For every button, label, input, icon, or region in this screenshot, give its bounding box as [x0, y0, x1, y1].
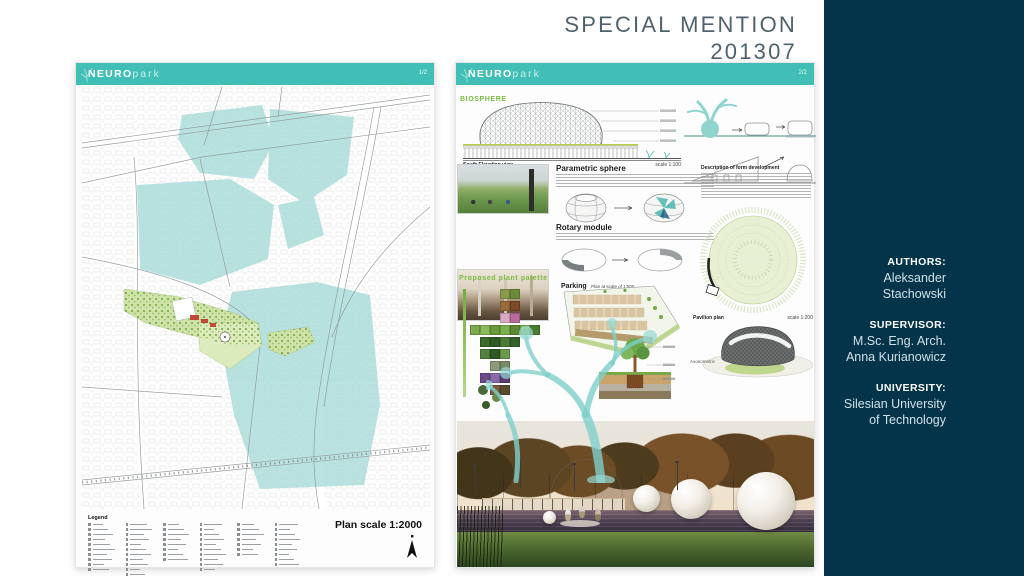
glow-sphere-small [633, 485, 660, 512]
brand-neuro: NEURO [468, 68, 512, 80]
palette-swatch [520, 337, 528, 345]
palette-swatch [510, 385, 518, 393]
palette-swatch [510, 289, 520, 299]
palette-swatch [480, 361, 488, 369]
palette-swatch [530, 313, 538, 321]
pavilion-plan-scale: scale 1:200 [787, 315, 813, 321]
legend-item [126, 573, 153, 576]
palette-swatch [500, 373, 510, 383]
palette-swatch [480, 337, 490, 347]
legend-item [275, 548, 301, 551]
legend-item [88, 553, 115, 556]
tree-section-diagram [589, 335, 681, 405]
legend-item [163, 543, 189, 546]
palette-swatch [530, 361, 538, 369]
parametric-sphere-diagram [556, 189, 706, 225]
university-label: UNIVERSITY: [824, 382, 946, 394]
legend-column [237, 523, 264, 576]
palette-swatch [510, 349, 518, 357]
plant-height-scale [463, 289, 466, 397]
palette-swatch [520, 373, 528, 381]
credits-sidebar: AUTHORS: Aleksander Stachowski SUPERVISO… [824, 0, 1024, 576]
supervisor-name: Anna Kurianowicz [824, 349, 946, 365]
palette-swatch [500, 361, 510, 371]
legend-item [275, 563, 301, 566]
legend-item [88, 568, 115, 571]
north-arrow-icon [404, 535, 420, 561]
palette-swatch [490, 349, 500, 359]
legend-item [237, 523, 264, 526]
render-lawn [457, 532, 814, 567]
glow-sphere-lawn [543, 511, 556, 524]
legend-item [88, 528, 115, 531]
palette-swatch [500, 313, 510, 323]
legend-item [88, 523, 115, 526]
elevation-scale: scale 1:100 [655, 162, 681, 168]
legend-item [88, 538, 115, 541]
university-name-2: of Technology [824, 412, 946, 428]
legend-item [88, 563, 115, 566]
legend-item [200, 548, 227, 551]
palette-swatch [480, 301, 488, 309]
palette-swatch [470, 361, 478, 369]
legend-item [163, 553, 189, 556]
legend-item [126, 528, 153, 531]
page-indicator-right: 2/2 [799, 70, 807, 76]
palette-swatch [530, 337, 538, 345]
legend-item [275, 533, 301, 536]
legend-item [126, 568, 153, 571]
poster-right-header: NEUROpark 2/2 [456, 63, 814, 85]
picnic-person [565, 509, 571, 521]
palette-swatch [470, 301, 478, 309]
palette-swatch [470, 385, 478, 393]
palette-swatch [480, 349, 490, 359]
street-lamp [520, 461, 521, 488]
street-lamp [574, 465, 575, 492]
award-title: SPECIAL MENTION [564, 12, 797, 39]
palette-swatch [480, 313, 488, 321]
legend-item [237, 548, 264, 551]
dome-elevation-drawing [463, 101, 681, 159]
legend-item [275, 523, 301, 526]
axonometric-caption: Axonometric [690, 359, 715, 364]
legend-item [200, 533, 227, 536]
plan-scale-label: Plan scale 1:2000 [335, 519, 422, 531]
palette-swatch [520, 289, 528, 297]
rotary-module-diagram [556, 244, 706, 274]
legend-item [200, 563, 227, 566]
poster-left-header: NEUROpark 1/2 [76, 63, 434, 85]
legend-item [275, 543, 301, 546]
palette-swatch [480, 325, 490, 335]
street-lamp [677, 463, 678, 490]
legend-item [200, 538, 227, 541]
legend-column [275, 523, 301, 576]
palette-swatch [470, 337, 478, 345]
form-development-heading: Description of form development [701, 165, 779, 171]
authors-label: AUTHORS: [824, 256, 946, 268]
palette-swatch [500, 325, 510, 335]
brand-neuro: NEURO [88, 68, 132, 80]
legend-column [126, 523, 153, 576]
palette-swatch [490, 289, 498, 297]
palette-swatch [470, 349, 478, 357]
legend-item [163, 528, 189, 531]
plant-icon [492, 393, 501, 402]
legend-item [200, 523, 227, 526]
park-render-image [457, 421, 814, 567]
palette-swatch [510, 301, 520, 311]
legend-item [88, 548, 115, 551]
palette-swatch [530, 289, 538, 297]
form-development-text [701, 173, 811, 199]
masterplan-map [82, 87, 430, 509]
legend-column [88, 523, 115, 576]
legend-item [126, 523, 153, 526]
legend-item [237, 533, 264, 536]
palette-swatch [500, 385, 510, 395]
rotary-module-heading: Rotary module [556, 223, 612, 232]
picnic-person [579, 506, 585, 518]
legend-item [163, 558, 189, 561]
palette-swatch [520, 301, 528, 309]
legend-item [200, 568, 227, 571]
legend-item [163, 523, 189, 526]
plant-palette-heading: Proposed plant palette [459, 275, 548, 282]
legend-item [163, 538, 189, 541]
rotary-module-text [556, 233, 714, 241]
legend-column [200, 523, 227, 576]
parametric-sphere-heading: Parametric sphere [556, 164, 626, 173]
neuron-concept-diagram [684, 96, 816, 142]
legend-item [88, 533, 115, 536]
palette-swatch [490, 301, 498, 309]
palette-swatch [520, 361, 528, 369]
palette-swatch [520, 313, 528, 321]
palette-swatch [510, 337, 520, 347]
palette-swatch [510, 325, 520, 335]
legend-item [237, 553, 264, 556]
supervisor-block: SUPERVISOR: M.Sc. Eng. Arch. Anna Kurian… [824, 319, 946, 365]
brand-logo: NEUROpark [468, 68, 541, 80]
axonometric-drawing [699, 323, 817, 379]
legend-item [126, 543, 153, 546]
palette-swatch [530, 301, 538, 309]
legend-item [163, 548, 189, 551]
legend-item [275, 528, 301, 531]
legend-column [163, 523, 189, 576]
plant-palette-grid [470, 289, 538, 395]
render-reeds [457, 506, 503, 567]
parametric-sphere-text [556, 174, 714, 187]
legend-item [88, 543, 115, 546]
street-lamp [475, 466, 476, 493]
palette-swatch [490, 361, 500, 371]
glow-sphere-large [737, 472, 795, 530]
palette-swatch [510, 361, 518, 369]
photo-canopy-render [457, 164, 549, 214]
map-legend-row: Legend Plan scale 1:2000 [76, 509, 434, 567]
supervisor-label: SUPERVISOR: [824, 319, 946, 331]
palette-swatch [480, 289, 488, 297]
page-indicator-left: 1/2 [419, 70, 427, 76]
supervisor-degree: M.Sc. Eng. Arch. [824, 333, 946, 349]
legend-item [237, 538, 264, 541]
legend-item [237, 528, 264, 531]
pavilion-caption-row: Pavilion plan scale 1:200 [693, 314, 813, 321]
palette-swatch [510, 373, 518, 381]
palette-swatch [470, 325, 480, 335]
palette-swatch [500, 349, 510, 359]
plant-icon [482, 401, 490, 409]
picnic-blanket [560, 520, 600, 527]
university-block: UNIVERSITY: Silesian University of Techn… [824, 382, 946, 428]
legend-item [126, 558, 153, 561]
palette-swatch [530, 373, 538, 381]
palette-swatch [500, 337, 510, 347]
legend-item [237, 543, 264, 546]
palette-swatch [490, 313, 498, 321]
legend-item [126, 563, 153, 566]
legend-item [126, 533, 153, 536]
pavilion-plan-caption: Pavilion plan [693, 315, 724, 321]
legend-item [200, 543, 227, 546]
palette-swatch [520, 385, 528, 393]
brand-park: park [132, 68, 160, 80]
brand-logo: NEUROpark [88, 68, 161, 80]
picnic-person [595, 509, 601, 521]
palette-swatch [470, 313, 478, 321]
palette-swatch [520, 325, 530, 335]
pavilion-plan-drawing [693, 206, 813, 314]
palette-swatch [470, 373, 478, 381]
palette-swatch [480, 373, 490, 383]
legend-item [126, 538, 153, 541]
palette-swatch [530, 385, 538, 393]
palette-swatch [490, 373, 500, 383]
legend-item [88, 558, 115, 561]
legend-item [275, 538, 301, 541]
palette-swatch [470, 289, 478, 297]
palette-swatch [530, 349, 538, 357]
legend-columns [88, 523, 300, 576]
poster-masterplan: NEUROpark 1/2 [75, 62, 435, 568]
legend-item [200, 528, 227, 531]
slide-title: SPECIAL MENTION 201307 [564, 12, 797, 66]
palette-swatch [500, 301, 510, 311]
slide-canvas: SPECIAL MENTION 201307 AUTHORS: Aleksand… [0, 0, 1024, 576]
authors-block: AUTHORS: Aleksander Stachowski [824, 256, 946, 302]
poster-biosphere: NEUROpark 2/2 BIOSPHERE [455, 62, 815, 568]
legend-item [126, 548, 153, 551]
palette-swatch [530, 325, 540, 335]
palette-swatch [520, 349, 528, 357]
university-name-1: Silesian University [824, 396, 946, 412]
brand-park: park [512, 68, 540, 80]
palette-swatch [510, 313, 520, 323]
palette-swatch [500, 289, 510, 299]
map-graphic [82, 87, 430, 509]
palette-swatch [490, 325, 500, 335]
legend-item [275, 553, 301, 556]
palette-swatch [490, 337, 500, 347]
legend-item [163, 533, 189, 536]
authors-name: Aleksander Stachowski [824, 270, 946, 302]
legend-item [275, 558, 301, 561]
legend-item [200, 558, 227, 561]
plant-icon [478, 385, 488, 395]
legend-item [126, 553, 153, 556]
legend-item [200, 553, 227, 556]
legend-title: Legend [88, 515, 108, 521]
